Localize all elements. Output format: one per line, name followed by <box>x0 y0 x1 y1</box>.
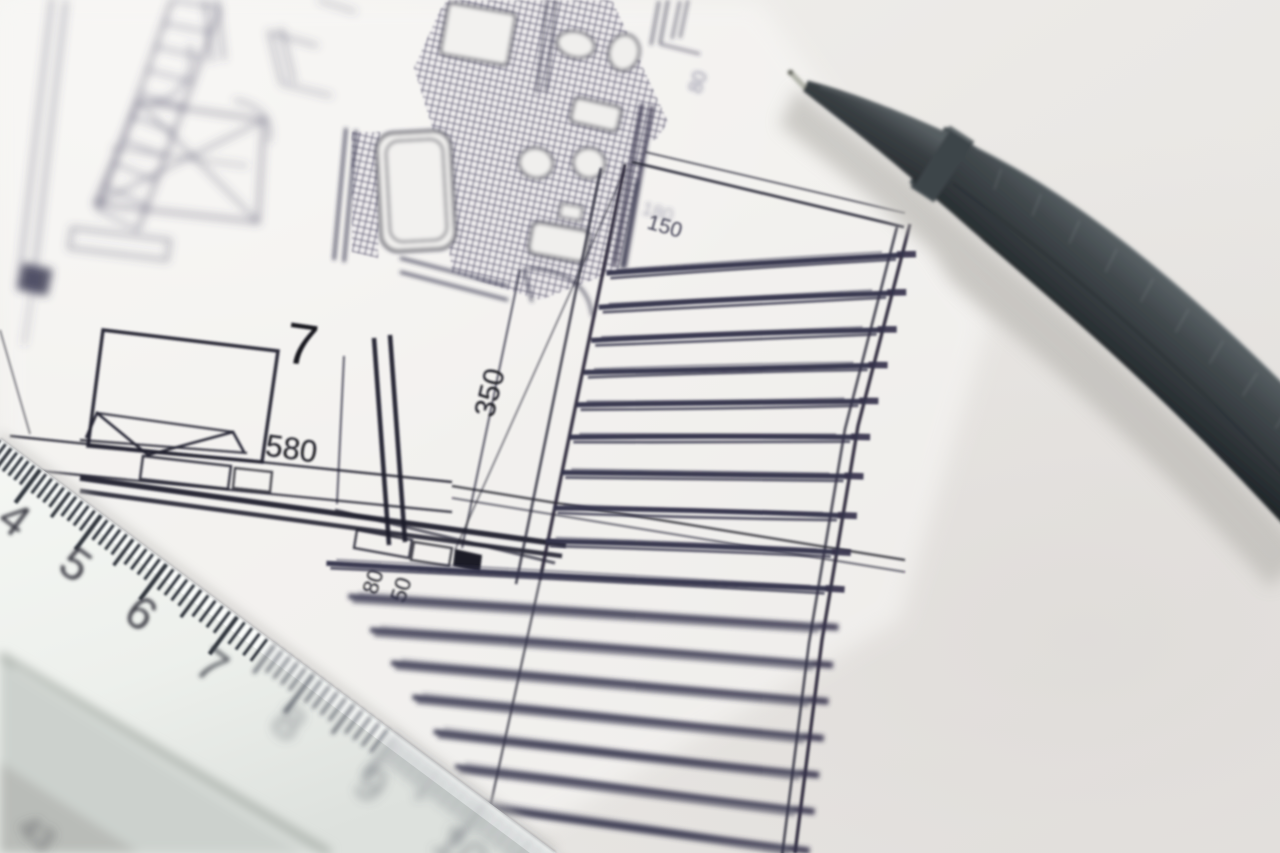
svg-text:580: 580 <box>263 428 319 470</box>
